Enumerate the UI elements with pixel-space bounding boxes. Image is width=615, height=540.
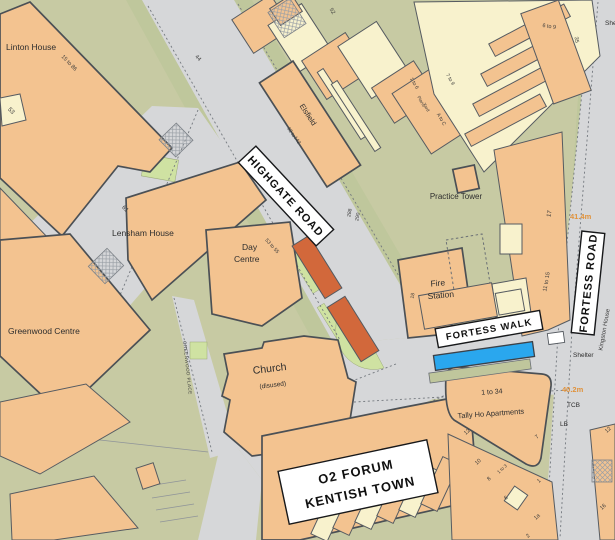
label-1-to-34: 1 to 34 xyxy=(481,388,503,396)
building-practice-tower xyxy=(453,165,480,193)
label-shelter-top: Shelter xyxy=(605,20,615,27)
label-lb: LB xyxy=(560,421,568,428)
label-practice-tower: Practice Tower xyxy=(430,192,483,201)
label-spot-height-41: 41.4m xyxy=(570,212,592,221)
os-map-view: 15 to 86 53 44 52 61 53 to 55 62 to 142 … xyxy=(0,0,615,540)
label-greenwood-centre: Greenwood Centre xyxy=(8,326,80,336)
label-fire: Fire xyxy=(430,277,446,288)
label-shelter-mid: Shelter xyxy=(573,352,594,359)
hatched-structure xyxy=(592,460,612,482)
label-lensham-house: Lensham House xyxy=(112,228,174,238)
shelter-structure xyxy=(547,331,564,344)
label-spot-height-40: 40.2m xyxy=(562,385,584,394)
label-centre: Centre xyxy=(234,254,260,264)
label-linton-house: Linton House xyxy=(6,42,56,52)
map-canvas: 15 to 86 53 44 52 61 53 to 55 62 to 142 … xyxy=(0,0,615,540)
label-tcb: TCB xyxy=(567,402,580,409)
label-day: Day xyxy=(242,242,258,252)
label-35: 35 xyxy=(572,36,579,43)
